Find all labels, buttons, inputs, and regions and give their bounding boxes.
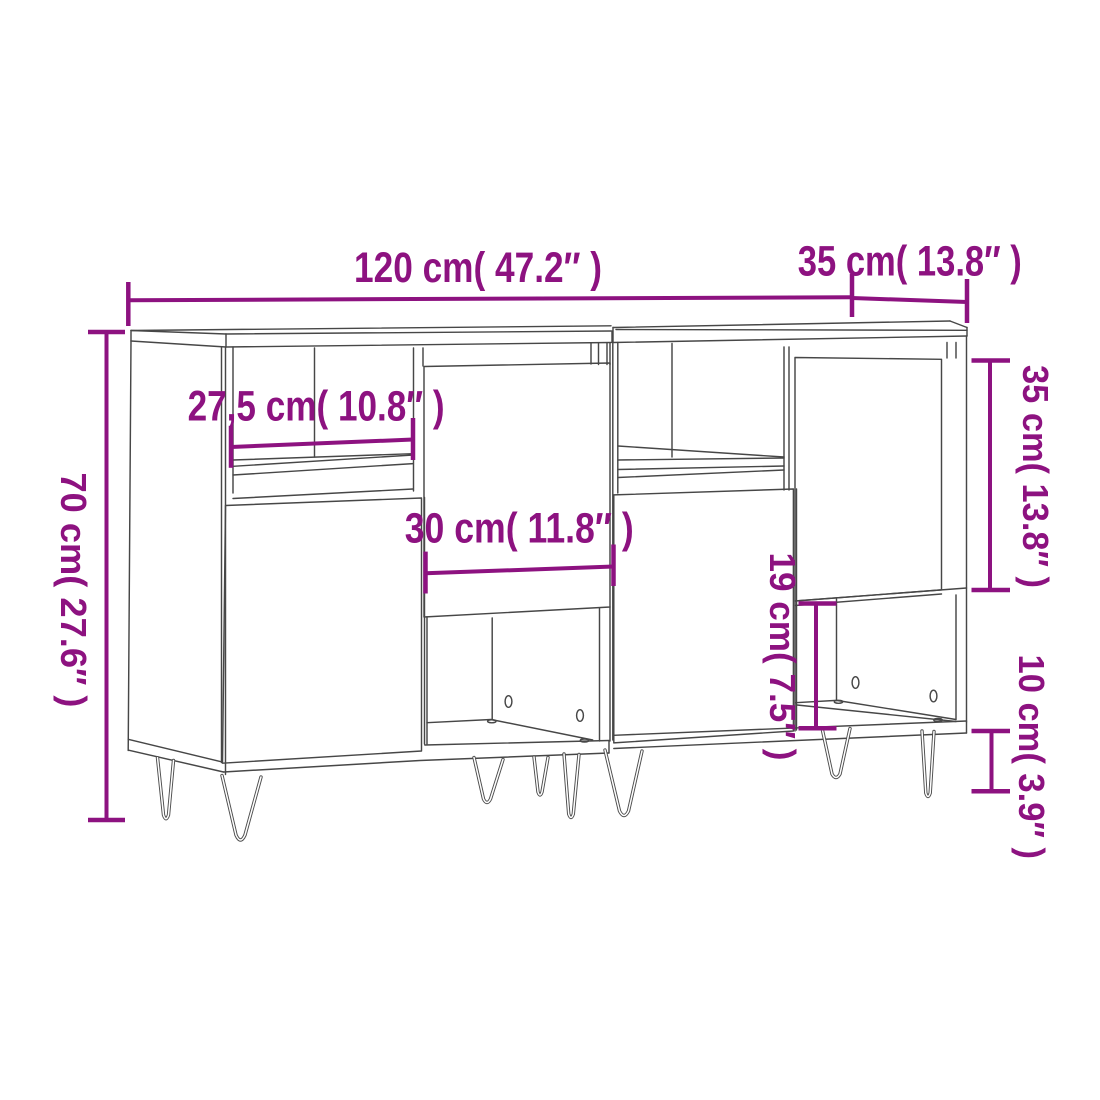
- svg-text:19 cm( 7.5″ ): 19 cm( 7.5″ ): [762, 553, 803, 761]
- svg-text:70 cm( 27.6″ ): 70 cm( 27.6″ ): [53, 473, 94, 708]
- svg-text:35 cm( 13.8″ ): 35 cm( 13.8″ ): [798, 238, 1022, 286]
- svg-text:120 cm( 47.2″ ): 120 cm( 47.2″ ): [354, 244, 602, 292]
- svg-text:35 cm( 13.8″ ): 35 cm( 13.8″ ): [1015, 365, 1056, 588]
- svg-text:27,5 cm( 10.8″ ): 27,5 cm( 10.8″ ): [188, 383, 445, 431]
- svg-text:10 cm( 3.9″ ): 10 cm( 3.9″ ): [1011, 655, 1052, 860]
- svg-text:30 cm( 11.8″ ): 30 cm( 11.8″ ): [405, 505, 634, 553]
